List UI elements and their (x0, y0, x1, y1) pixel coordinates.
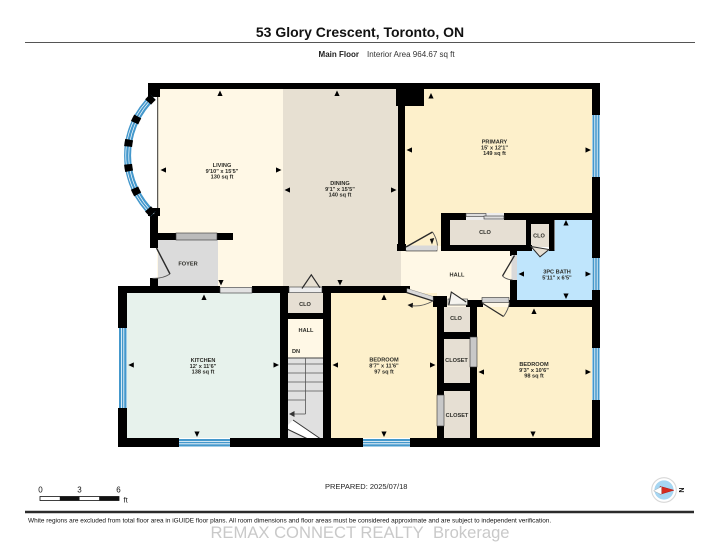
svg-text:53 Glory Crescent, Toronto, ON: 53 Glory Crescent, Toronto, ON (256, 24, 464, 40)
svg-text:Interior Area 964.67 sq ft: Interior Area 964.67 sq ft (367, 50, 455, 59)
svg-text:CLO: CLO (450, 316, 462, 322)
svg-text:Main Floor: Main Floor (319, 50, 359, 59)
svg-text:CLOSET: CLOSET (445, 358, 468, 364)
svg-text:149 sq ft: 149 sq ft (483, 151, 506, 157)
svg-text:5'11" x 6'5": 5'11" x 6'5" (542, 275, 572, 281)
svg-text:CLO: CLO (533, 234, 545, 240)
svg-text:138 sq ft: 138 sq ft (192, 370, 215, 376)
svg-text:6: 6 (116, 486, 121, 495)
svg-text:CLO: CLO (299, 302, 311, 308)
svg-text:FOYER: FOYER (178, 262, 197, 268)
svg-text:REMAX CONNECT REALTY Brokerag: REMAX CONNECT REALTY Brokerage (210, 523, 509, 542)
svg-text:PREPARED: 2025/07/18: PREPARED: 2025/07/18 (325, 482, 407, 491)
svg-text:CLOSET: CLOSET (446, 413, 469, 419)
svg-text:DN: DN (292, 349, 300, 355)
svg-text:0: 0 (38, 486, 43, 495)
svg-text:98 sq ft: 98 sq ft (524, 374, 544, 380)
svg-text:130 sq ft: 130 sq ft (211, 175, 234, 181)
svg-text:N: N (677, 487, 684, 492)
svg-text:HALL: HALL (450, 273, 465, 279)
svg-text:97 sq ft: 97 sq ft (374, 369, 394, 375)
svg-text:3: 3 (77, 486, 82, 495)
svg-text:CLO: CLO (479, 230, 491, 236)
svg-text:140 sq ft: 140 sq ft (329, 193, 352, 199)
svg-text:HALL: HALL (299, 328, 314, 334)
